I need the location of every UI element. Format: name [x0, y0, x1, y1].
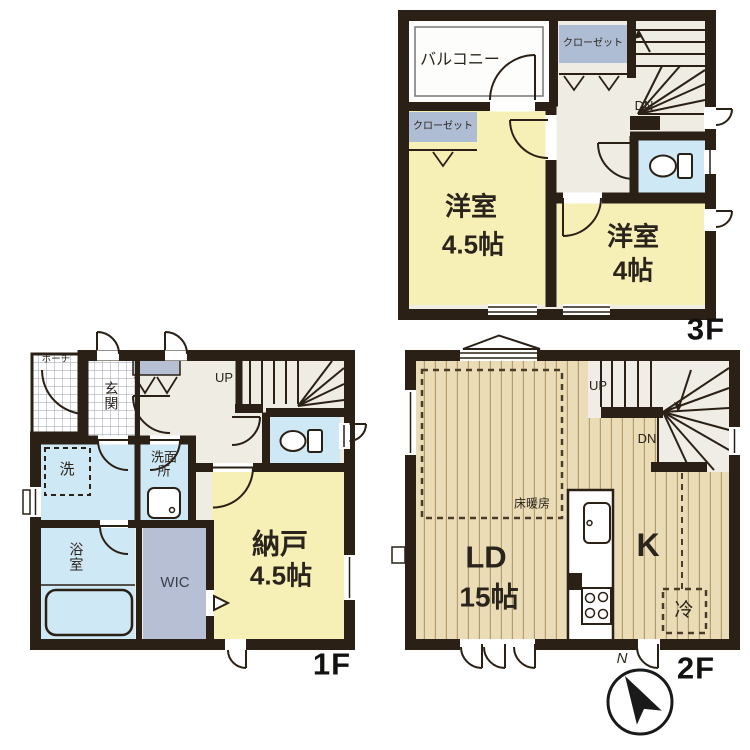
storage-size: 4.5帖 — [250, 562, 312, 589]
kitchen-label: K — [636, 529, 659, 563]
sink-icon — [148, 488, 180, 518]
up-label-1f: UP — [215, 371, 233, 385]
room-a-size: 4.5帖 — [442, 231, 504, 258]
closet-top-label: クローゼット — [563, 39, 623, 50]
washroom-label: 洗面所 — [149, 450, 179, 477]
floor-label-2f: 2F — [677, 653, 715, 686]
bay-window — [463, 336, 540, 350]
floorplan-2f: UP DN 床暖房 LD 15帖 K 冷 N 2F — [392, 330, 750, 750]
wic-label: WIC — [160, 575, 189, 591]
balcony-label: バルコニー — [420, 53, 500, 70]
room-yoshitsu-4 — [557, 203, 706, 305]
floorplan-1f-drawing — [22, 338, 382, 694]
room-bath — [41, 528, 135, 640]
entrance-label: 玄関 — [104, 381, 119, 411]
floorplan-2f-drawing — [392, 330, 750, 750]
porch — [32, 354, 83, 437]
compass-n-label: N — [617, 651, 628, 667]
room-laundry — [41, 443, 135, 520]
floorplan-canvas: バルコニー クローゼット クローゼット DN 洋室 4.5帖 洋室 4帖 3F — [0, 0, 750, 750]
room-b-size: 4帖 — [613, 257, 653, 284]
dn-label-3f: DN — [635, 99, 654, 113]
floor-label-1f: 1F — [313, 649, 351, 682]
fridge-label: 冷 — [674, 601, 693, 621]
room-b-name: 洋室 — [607, 223, 659, 250]
room-a-name: 洋室 — [445, 193, 497, 220]
kitchen-counter — [568, 490, 613, 645]
floorplan-3f: バルコニー クローゼット クローゼット DN 洋室 4.5帖 洋室 4帖 3F — [398, 8, 750, 353]
floor-heating-label: 床暖房 — [514, 498, 550, 511]
compass-icon — [608, 670, 672, 734]
closet-room-a-label: クローゼット — [413, 122, 473, 133]
floorplan-1f: ポーチ 玄関 UP 洗 洗面所 浴室 WIC 納戸 4.5帖 1F — [22, 338, 382, 694]
ld-size: 15帖 — [459, 582, 518, 611]
bath-label: 浴室 — [69, 542, 84, 572]
ld-name: LD — [465, 542, 506, 575]
up-label-2f: UP — [589, 379, 607, 393]
storage-name: 納戸 — [252, 529, 308, 558]
toilet-icon-1f — [281, 430, 323, 452]
laundry-label: 洗 — [59, 462, 74, 478]
porch-label: ポーチ — [42, 355, 71, 365]
dn-label-2f: DN — [638, 432, 657, 446]
toilet-icon-3f — [650, 154, 692, 178]
